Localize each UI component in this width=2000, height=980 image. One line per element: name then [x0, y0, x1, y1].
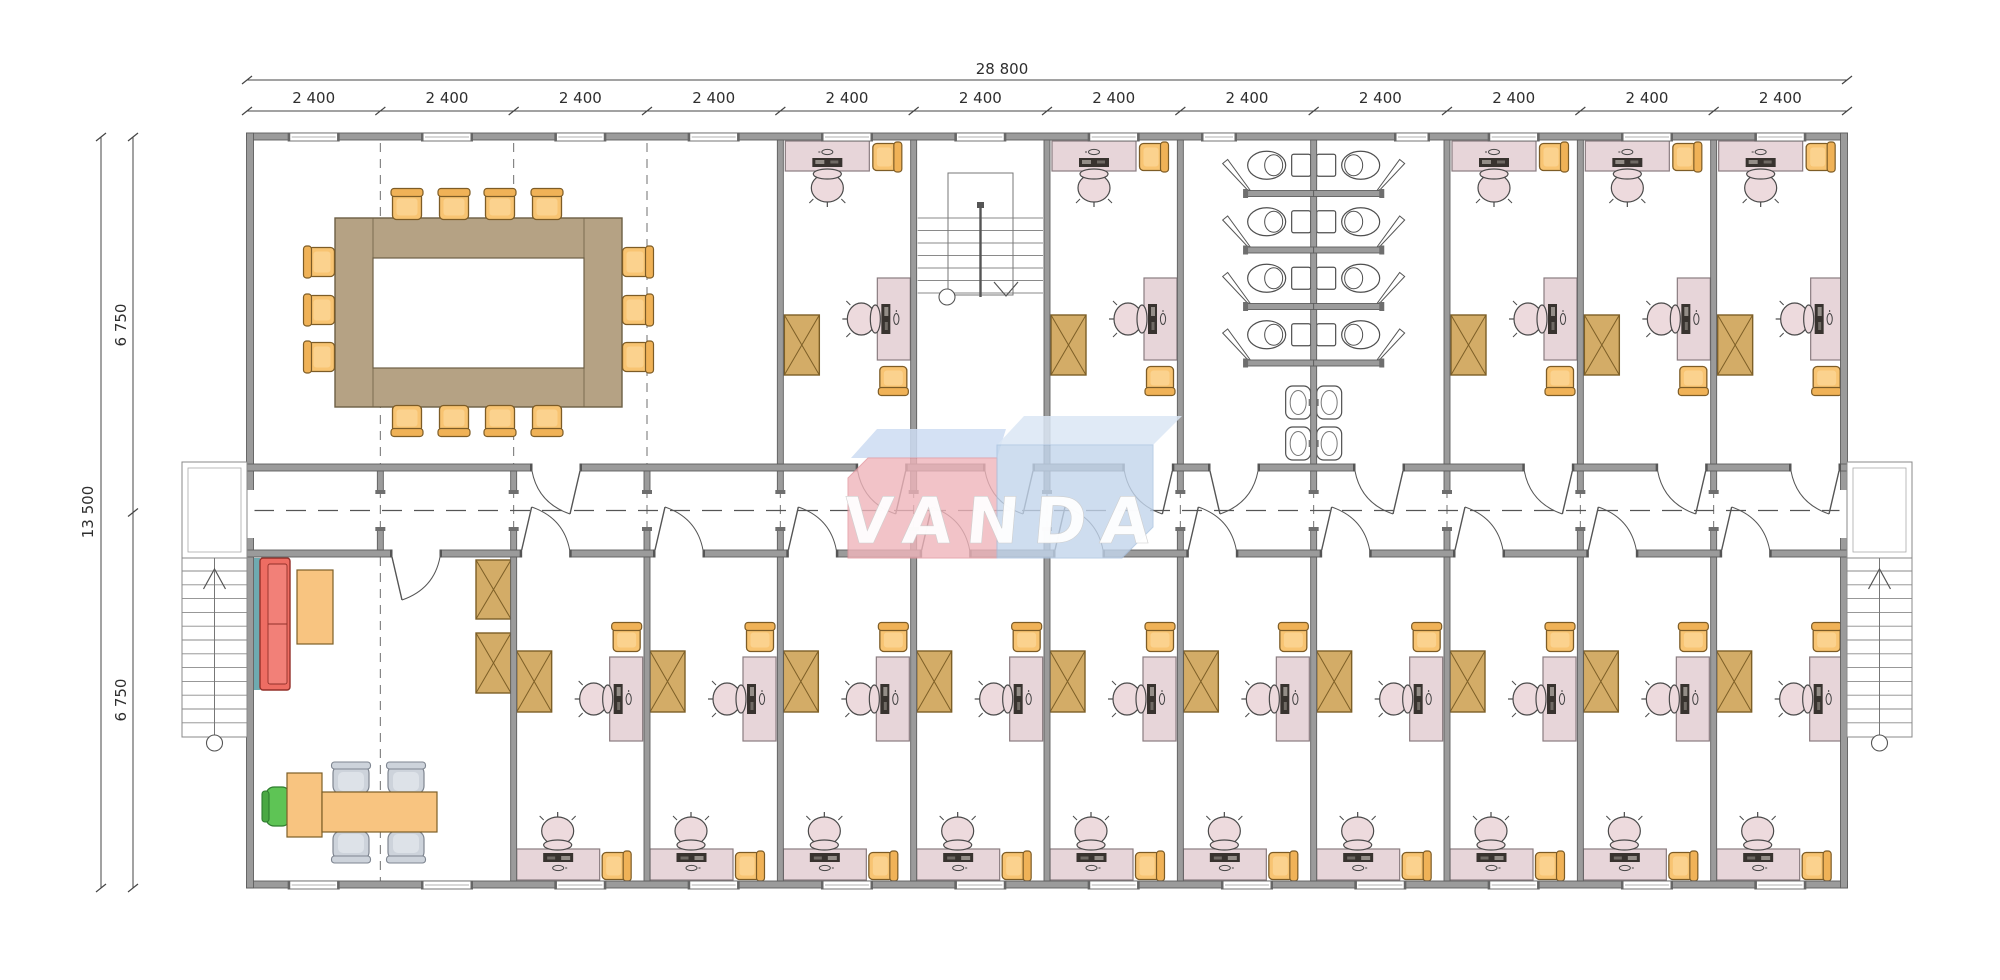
cabinet-icon: [1451, 315, 1486, 375]
side-chair-icon: [1145, 623, 1175, 652]
wall-cap: [775, 490, 785, 494]
side-chair-icon: [623, 341, 654, 373]
wall: [1177, 557, 1183, 881]
external-stairs: [182, 462, 247, 751]
side-chair-icon: [1545, 623, 1575, 652]
window-icon: [1488, 881, 1540, 890]
cabinet-icon: [1183, 651, 1218, 712]
dimension-label: 2 400: [1359, 89, 1402, 107]
green-chair-icon: [262, 787, 290, 826]
door-opening: [532, 464, 580, 472]
reception-desk: [287, 773, 322, 837]
cabinet-icon: [1317, 651, 1352, 712]
wall: [1314, 247, 1381, 253]
window-icon: [1394, 133, 1430, 142]
wall: [1177, 529, 1183, 551]
side-chair-icon: [602, 851, 631, 881]
toilet-icon: [1317, 151, 1380, 179]
desk: [917, 849, 1000, 880]
side-chair-icon: [745, 623, 775, 652]
sofa-shelf: [254, 558, 260, 690]
side-chair-icon: [612, 623, 642, 652]
cabinet-icon: [1584, 315, 1619, 375]
window-icon: [288, 133, 340, 142]
wall: [1314, 304, 1381, 310]
side-chair-icon: [1140, 142, 1169, 172]
cabinet-icon: [1717, 651, 1752, 712]
side-chair-icon: [1412, 623, 1442, 652]
side-chair-icon: [1545, 367, 1575, 396]
side-chair-icon: [869, 851, 898, 881]
dimension-label: 2 400: [1626, 89, 1669, 107]
window-icon: [554, 133, 606, 142]
window-icon: [1354, 881, 1406, 890]
wall-cap: [509, 490, 519, 494]
cabinet-icon: [917, 651, 952, 712]
window-icon: [421, 881, 473, 890]
wall: [1444, 557, 1450, 881]
reception-desk: [322, 792, 437, 832]
desk: [650, 849, 733, 880]
door-opening: [522, 550, 570, 558]
wall: [1711, 529, 1717, 551]
logo-red-bevel: [851, 429, 1006, 458]
window-icon: [954, 133, 1006, 142]
logo-blue-bevel: [997, 416, 1182, 445]
side-chair-icon: [1402, 851, 1431, 881]
wall: [1314, 191, 1381, 197]
wall-cap: [375, 490, 385, 494]
cabinet-icon: [1051, 315, 1086, 375]
desk: [876, 657, 909, 741]
window-icon: [554, 881, 606, 890]
wall-cap: [1309, 490, 1319, 494]
side-chair-icon: [304, 341, 335, 373]
wall: [1577, 140, 1583, 464]
dimension-label: 2 400: [959, 89, 1002, 107]
wall-cap: [509, 527, 519, 531]
desk: [1183, 849, 1266, 880]
conference-room: [304, 189, 654, 437]
side-chair-icon: [438, 189, 470, 220]
desk: [877, 278, 910, 360]
toilet-icon: [1317, 264, 1380, 292]
wall: [1311, 140, 1317, 464]
wall: [1711, 140, 1717, 464]
desk: [743, 657, 776, 741]
window-icon: [421, 133, 473, 142]
side-chair-icon: [1136, 851, 1165, 881]
wall: [1444, 471, 1450, 492]
door-opening: [788, 550, 836, 558]
side-chair-icon: [623, 294, 654, 326]
side-chair-icon: [1540, 142, 1569, 172]
wall: [777, 529, 783, 551]
wall: [911, 140, 917, 464]
cabinet-icon: [783, 651, 818, 712]
wall: [1247, 304, 1314, 310]
cabinet-icon: [1450, 651, 1485, 712]
cabinet-icon: [517, 651, 552, 712]
side-chair-icon: [878, 623, 908, 652]
cabinet-icon: [476, 633, 511, 693]
wall: [247, 881, 1848, 888]
window-icon: [1221, 881, 1273, 890]
side-chair-icon: [304, 294, 335, 326]
wall: [1311, 529, 1317, 551]
dimension-label: 13 500: [79, 486, 97, 539]
side-chair-icon: [1278, 623, 1308, 652]
side-chair-icon: [623, 246, 654, 278]
side-chair-icon: [736, 851, 765, 881]
desk: [1583, 849, 1666, 880]
side-chair-icon: [1002, 851, 1031, 881]
dimension-label: 2 400: [426, 89, 469, 107]
desk: [1276, 657, 1309, 741]
wall: [777, 557, 783, 881]
cabinet-icon: [476, 560, 511, 619]
wall: [1044, 557, 1050, 881]
side-chair-icon: [878, 367, 908, 396]
window-icon: [821, 881, 873, 890]
desk: [610, 657, 643, 741]
door-opening: [1588, 550, 1636, 558]
wall-cap: [1442, 490, 1452, 494]
desk: [1143, 657, 1176, 741]
wall: [1311, 557, 1317, 881]
dimension-label: 2 400: [559, 89, 602, 107]
wall: [511, 471, 517, 492]
side-chair-icon: [1269, 851, 1298, 881]
side-chair-icon: [1012, 623, 1042, 652]
wall: [1577, 529, 1583, 551]
desk: [1810, 657, 1843, 741]
window-icon: [1201, 133, 1237, 142]
wall: [1177, 140, 1183, 464]
dimension-label: 2 400: [292, 89, 335, 107]
side-chair-icon: [1536, 851, 1565, 881]
wall: [644, 529, 650, 551]
logo-text: VANDA: [840, 484, 1167, 559]
floor-plan-page: VANDA28 8002 4002 4002 4002 4002 4002 40…: [0, 0, 2000, 980]
dimension-label: 2 400: [1092, 89, 1135, 107]
wall: [1247, 360, 1314, 366]
door-opening: [1455, 550, 1503, 558]
toilet-icon: [1248, 151, 1311, 179]
desk: [1410, 657, 1443, 741]
window-icon: [1488, 133, 1540, 142]
wall: [377, 471, 383, 492]
door-opening: [1658, 464, 1706, 472]
wall: [1247, 247, 1314, 253]
desk: [517, 849, 600, 880]
side-chair-icon: [531, 406, 563, 437]
side-chair-icon: [1806, 142, 1835, 172]
desk: [1543, 657, 1576, 741]
wall-cap: [375, 527, 385, 531]
desk: [1450, 849, 1533, 880]
desk: [1050, 849, 1133, 880]
wall: [911, 557, 917, 881]
desk: [1052, 141, 1136, 171]
side-chair-icon: [304, 246, 335, 278]
side-chair-icon: [391, 189, 423, 220]
cabinet-icon: [1718, 315, 1753, 375]
side-chair-icon: [1802, 851, 1831, 881]
door-opening: [1210, 464, 1258, 472]
side-chair-icon: [438, 406, 470, 437]
wall: [1444, 529, 1450, 551]
desk: [1676, 657, 1709, 741]
side-chair-icon: [1812, 623, 1842, 652]
desk: [785, 141, 869, 171]
toilet-icon: [1317, 321, 1380, 349]
wall: [1577, 471, 1583, 492]
wall-cap: [1175, 527, 1185, 531]
window-icon: [1088, 881, 1140, 890]
gray-chair-icon: [387, 762, 426, 794]
wall: [1577, 557, 1583, 881]
wall-cap: [642, 527, 652, 531]
wall-cap: [775, 527, 785, 531]
external-stairs: [1847, 462, 1912, 751]
door-opening: [1188, 550, 1236, 558]
window-icon: [1621, 133, 1673, 142]
door-opening: [1791, 464, 1839, 472]
side-chair-icon: [873, 142, 902, 172]
window-icon: [1754, 881, 1806, 890]
window-icon: [1088, 133, 1140, 142]
wall: [247, 133, 1848, 140]
wall: [644, 557, 650, 881]
sofa-icon: [260, 558, 290, 690]
side-chair-icon: [1678, 367, 1708, 396]
desk: [1452, 141, 1536, 171]
gray-chair-icon: [332, 831, 371, 863]
wall-cap: [1709, 527, 1719, 531]
dimension-label: 2 400: [1759, 89, 1802, 107]
door-opening: [1524, 464, 1572, 472]
door-opening: [392, 550, 440, 558]
cabinet-icon: [1050, 651, 1085, 712]
window-icon: [688, 133, 740, 142]
door-opening: [1355, 464, 1403, 472]
wall: [1711, 557, 1717, 881]
desk: [1719, 141, 1803, 171]
window-icon: [288, 881, 340, 890]
wall: [511, 557, 517, 881]
desk: [1585, 141, 1669, 171]
wall: [377, 529, 383, 551]
wall-cap: [1575, 490, 1585, 494]
wall: [1444, 140, 1450, 464]
desk: [1717, 849, 1800, 880]
window-icon: [1754, 133, 1806, 142]
desk: [1144, 278, 1177, 360]
toilet-icon: [1248, 321, 1311, 349]
toilet-icon: [1248, 264, 1311, 292]
side-chair-icon: [1673, 142, 1702, 172]
dimension-label: 2 400: [1492, 89, 1535, 107]
side-chair-icon: [1669, 851, 1698, 881]
wall: [1247, 191, 1314, 197]
wall-cap: [1442, 527, 1452, 531]
desk: [783, 849, 866, 880]
wall-cap: [1575, 527, 1585, 531]
side-chair-icon: [1678, 623, 1708, 652]
side-chair-icon: [1145, 367, 1175, 396]
wall: [777, 471, 783, 492]
toilet-icon: [1248, 208, 1311, 236]
dimension-label: 6 750: [112, 304, 130, 347]
door-opening: [1722, 550, 1770, 558]
wall: [1314, 360, 1381, 366]
door-opening: [1322, 550, 1370, 558]
toilet-icon: [1317, 208, 1380, 236]
cabinet-icon: [1583, 651, 1618, 712]
cabinet-icon: [784, 315, 819, 375]
desk: [1317, 849, 1400, 880]
dimension-label: 2 400: [692, 89, 735, 107]
gray-chair-icon: [387, 831, 426, 863]
dimension-label: 2 400: [1226, 89, 1269, 107]
wall-cap: [1175, 490, 1185, 494]
desk: [1811, 278, 1844, 360]
wall: [1044, 140, 1050, 464]
wall: [1311, 471, 1317, 492]
side-chair-icon: [484, 189, 516, 220]
coffee-table: [297, 570, 333, 644]
window-icon: [688, 881, 740, 890]
side-chair-icon: [1812, 367, 1842, 396]
cabinet-icon: [650, 651, 685, 712]
desk: [1010, 657, 1043, 741]
floor-plan-svg: VANDA28 8002 4002 4002 4002 4002 4002 40…: [0, 0, 2000, 980]
window-icon: [1621, 881, 1673, 890]
wall-cap: [642, 490, 652, 494]
wall: [1177, 471, 1183, 492]
side-chair-icon: [484, 406, 516, 437]
wall: [511, 529, 517, 551]
side-chair-icon: [391, 406, 423, 437]
dimension-label: 2 400: [826, 89, 869, 107]
dimension-label: 6 750: [112, 679, 130, 722]
wall-cap: [1709, 490, 1719, 494]
vanda-logo: VANDA: [840, 416, 1182, 559]
window-icon: [954, 881, 1006, 890]
wall-cap: [1309, 527, 1319, 531]
side-chair-icon: [531, 189, 563, 220]
window-icon: [821, 133, 873, 142]
wall: [777, 140, 783, 464]
wall: [644, 471, 650, 492]
desk: [1677, 278, 1710, 360]
dimension-label: 28 800: [976, 60, 1029, 78]
door-opening: [655, 550, 703, 558]
wall: [1711, 471, 1717, 492]
desk: [1544, 278, 1577, 360]
gray-chair-icon: [332, 762, 371, 794]
